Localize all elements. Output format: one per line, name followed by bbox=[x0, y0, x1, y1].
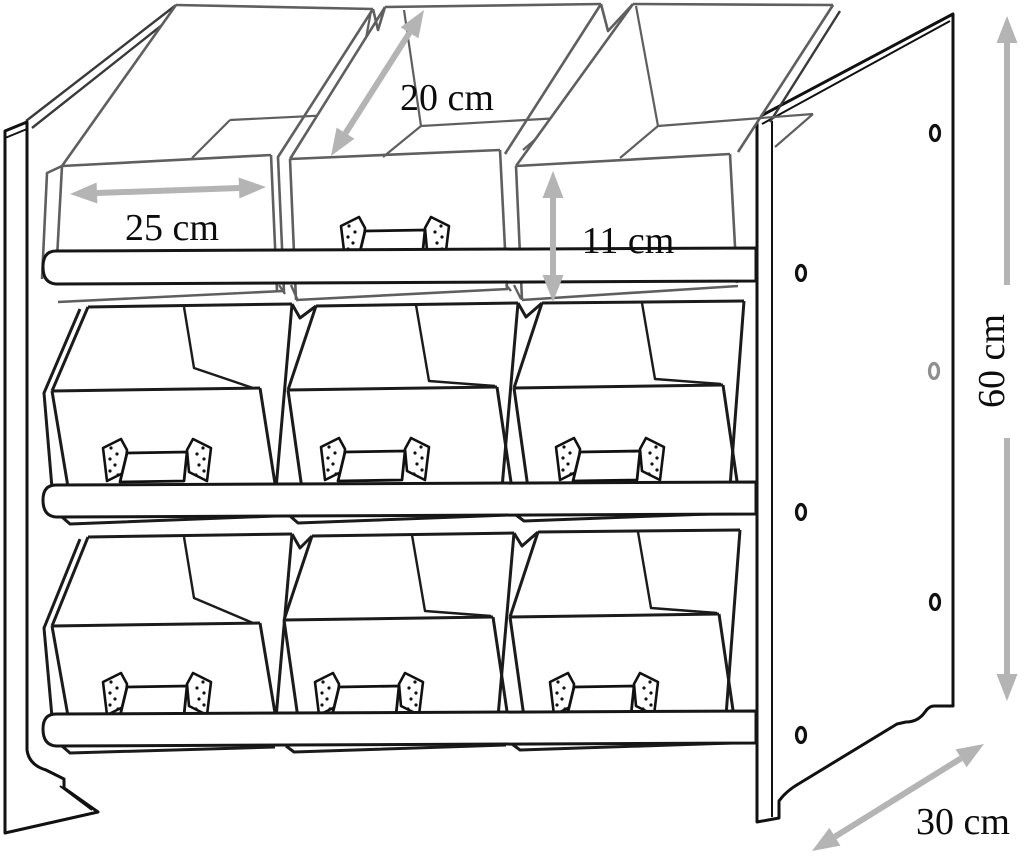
bin-height-label: 11 cm bbox=[582, 220, 675, 262]
bin-depth-label: 20 cm bbox=[400, 77, 494, 119]
bin-width-label: 25 cm bbox=[125, 207, 219, 249]
diagram-canvas: 20 cm 25 cm 11 cm 60 cm 30 cm bbox=[0, 0, 1024, 858]
storage-shelf-diagram: 20 cm 25 cm 11 cm 60 cm 30 cm bbox=[0, 0, 1024, 858]
unit-height-label: 60 cm bbox=[971, 314, 1013, 408]
right-side-panel bbox=[757, 14, 953, 822]
unit-depth-label: 30 cm bbox=[916, 801, 1010, 843]
front-rail-middle bbox=[43, 482, 756, 517]
front-rail-bottom bbox=[43, 711, 756, 746]
